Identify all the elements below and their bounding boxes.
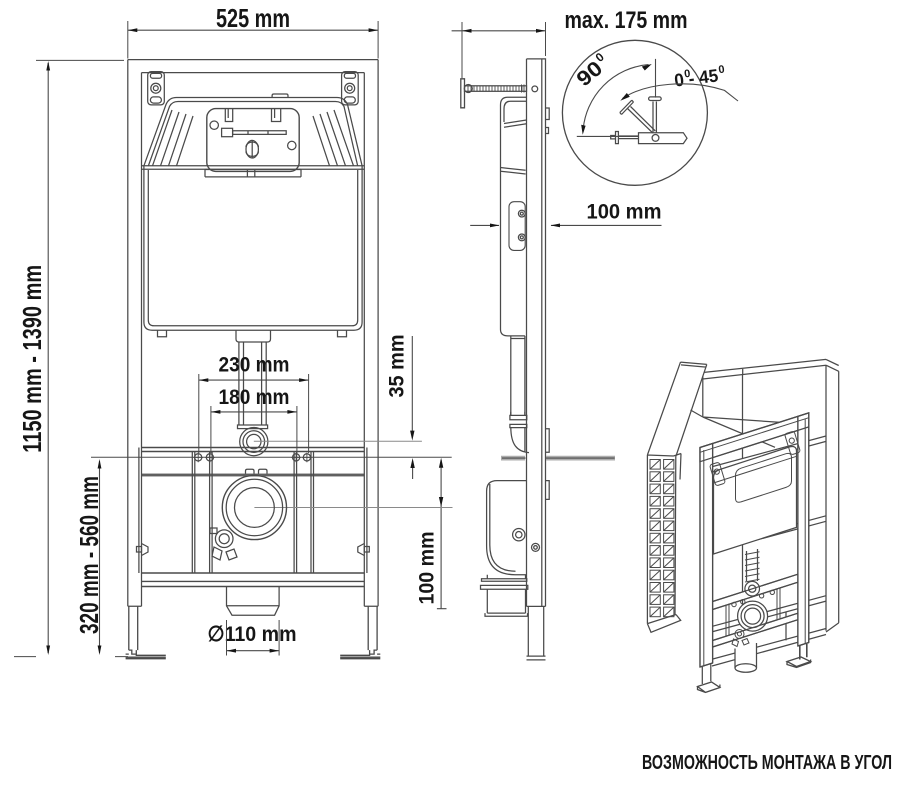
svg-text:180 mm: 180 mm (219, 385, 290, 409)
svg-text:ВОЗМОЖНОСТЬ МОНТАЖА В УГОЛ: ВОЗМОЖНОСТЬ МОНТАЖА В УГОЛ (642, 752, 892, 774)
svg-text:0: 0 (718, 64, 726, 77)
svg-text:230 mm: 230 mm (219, 353, 290, 377)
svg-text:∅110 mm: ∅110 mm (208, 622, 297, 646)
svg-text:525 mm: 525 mm (216, 3, 290, 33)
svg-text:1150 mm - 1390 mm: 1150 mm - 1390 mm (17, 265, 47, 453)
svg-text:100 mm: 100 mm (587, 200, 662, 224)
svg-text:100 mm: 100 mm (415, 532, 439, 605)
svg-text:35 mm: 35 mm (385, 335, 409, 398)
svg-text:max. 175 mm: max. 175 mm (565, 7, 688, 34)
